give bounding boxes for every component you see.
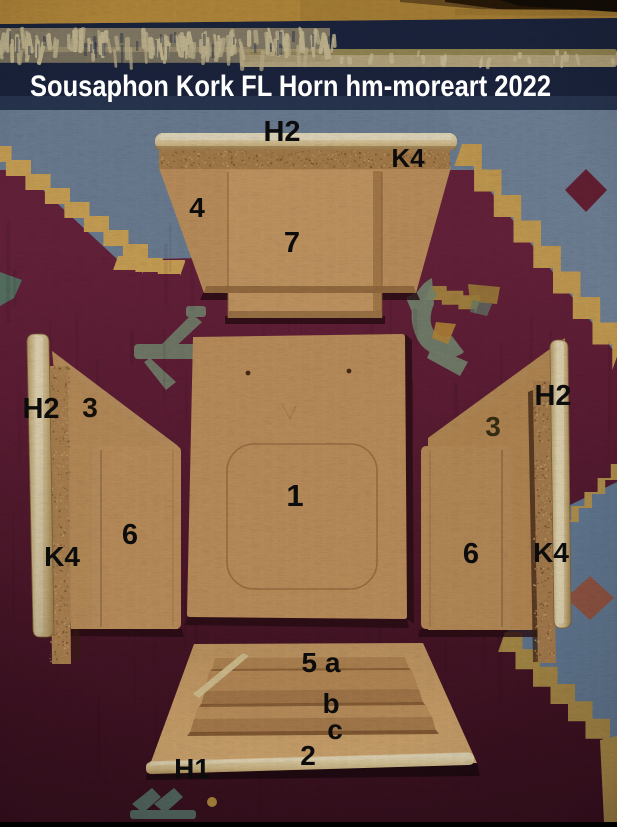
svg-text:K4: K4 <box>533 537 569 568</box>
svg-text:H2: H2 <box>534 380 571 412</box>
svg-text:3: 3 <box>82 392 98 423</box>
svg-text:H2: H2 <box>22 393 59 425</box>
svg-text:K4: K4 <box>44 541 80 572</box>
svg-text:Sousaphon Kork FL Horn hm-more: Sousaphon Kork FL Horn hm-moreart 2022 <box>30 70 551 103</box>
svg-text:H2: H2 <box>263 116 300 148</box>
svg-text:6: 6 <box>463 538 479 570</box>
svg-text:c: c <box>327 714 343 745</box>
svg-text:K4: K4 <box>391 143 425 173</box>
svg-text:7: 7 <box>284 227 300 259</box>
svg-text:1: 1 <box>286 478 303 513</box>
svg-text:5 a: 5 a <box>302 647 341 678</box>
svg-text:6: 6 <box>122 519 138 551</box>
svg-text:2: 2 <box>300 740 316 771</box>
svg-text:4: 4 <box>189 192 205 223</box>
svg-text:3: 3 <box>485 411 501 442</box>
svg-text:H1: H1 <box>174 753 210 784</box>
